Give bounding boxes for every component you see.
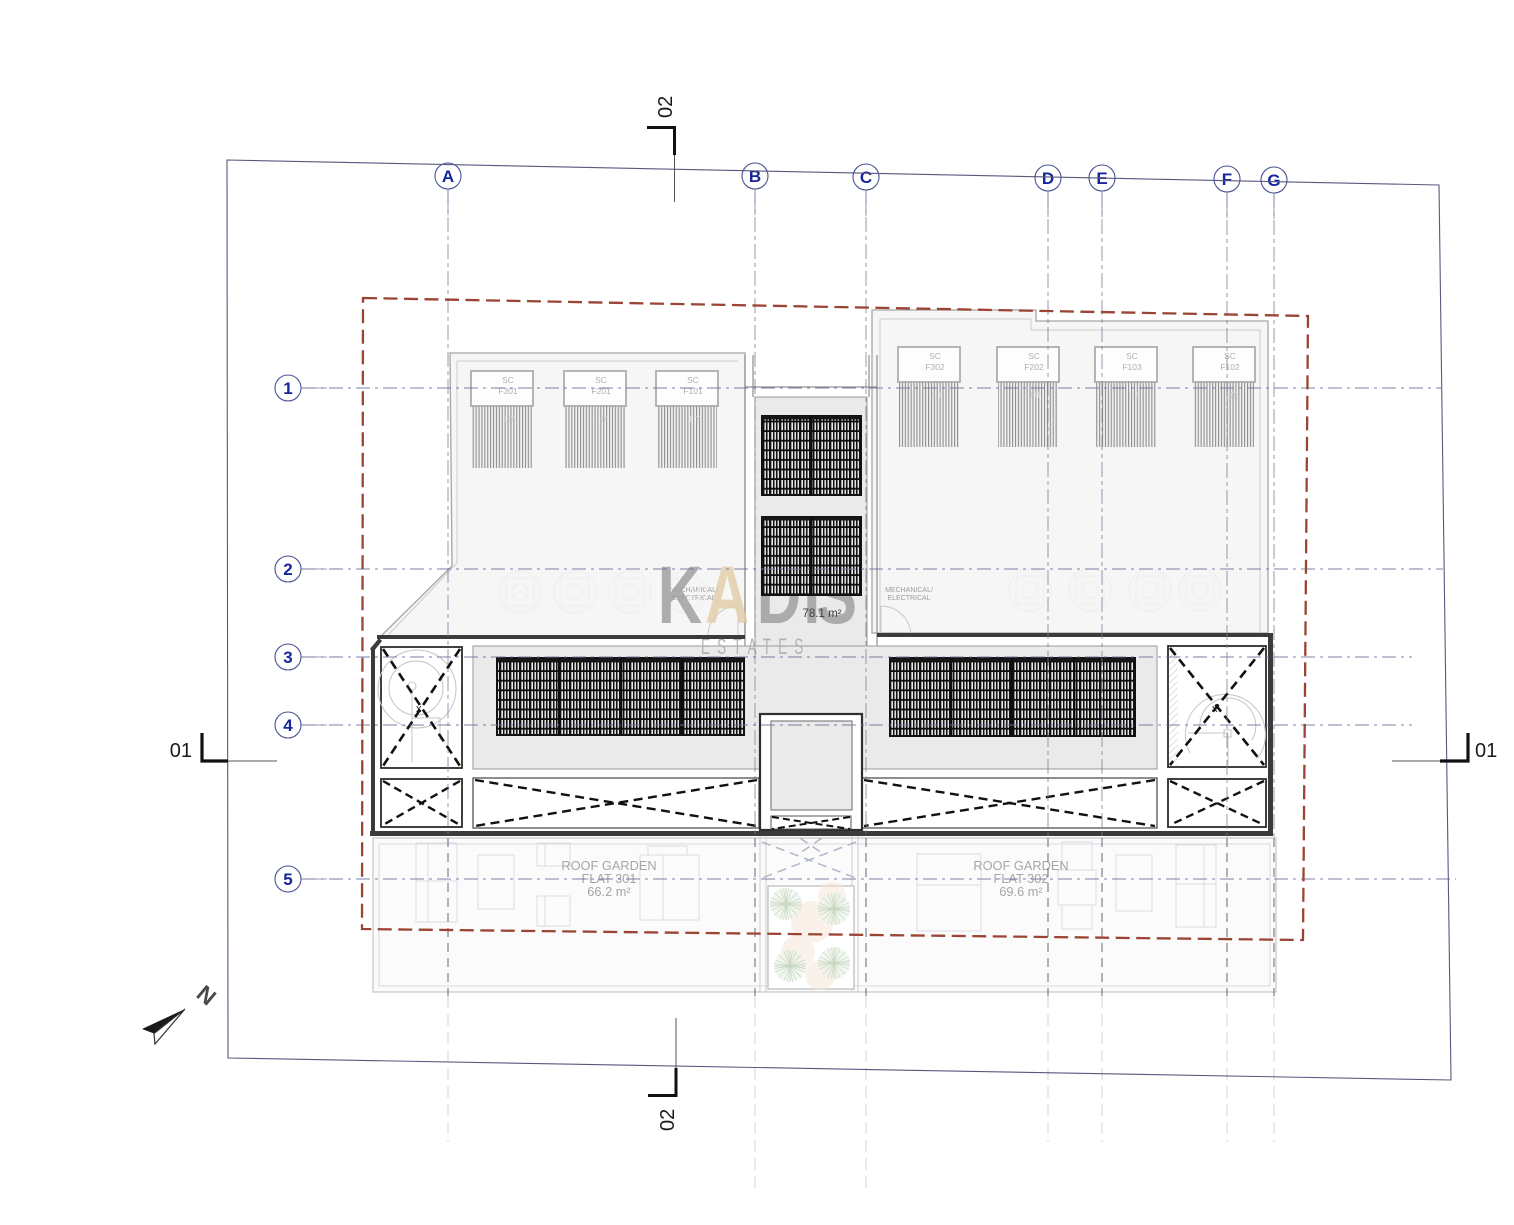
svg-text:ELECTRICAL: ELECTRICAL [887,595,930,602]
svg-text:HT: HT [1129,391,1140,400]
svg-text:HT: HT [690,415,701,424]
svg-text:K: K [658,549,702,641]
svg-text:02: 02 [655,96,677,118]
svg-text:F101: F101 [683,386,703,396]
svg-text:66.2 m²: 66.2 m² [587,884,631,899]
svg-text:F103: F103 [1122,362,1142,372]
svg-text:F102: F102 [1220,362,1240,372]
svg-text:MECHANICAL/: MECHANICAL/ [885,587,933,594]
svg-text:C: C [860,168,872,187]
svg-text:SC: SC [929,351,941,361]
svg-text:2: 2 [283,560,292,579]
svg-text:F301: F301 [498,386,518,396]
svg-text:5: 5 [283,870,292,889]
svg-text:HT: HT [505,415,516,424]
svg-text:01: 01 [170,740,192,762]
svg-text:HT: HT [932,391,943,400]
svg-text:01: 01 [1475,740,1497,762]
svg-text:B: B [749,167,761,186]
svg-text:F: F [1222,170,1232,189]
svg-text:3: 3 [283,648,292,667]
svg-text:SC: SC [687,375,699,385]
svg-text:HT: HT [598,415,609,424]
svg-text:x: x [1212,703,1218,715]
svg-text:HT: HT [1227,391,1238,400]
svg-text:SC: SC [1126,351,1138,361]
svg-text:G: G [1267,171,1280,190]
svg-text:D: D [1042,169,1054,188]
svg-text:x: x [416,703,422,715]
svg-text:A: A [705,549,749,641]
svg-text:F201: F201 [591,386,611,396]
svg-text:78.1 m²: 78.1 m² [803,608,842,620]
svg-text:02: 02 [657,1109,679,1131]
svg-text:A: A [442,167,454,186]
svg-text:HT: HT [1031,391,1042,400]
svg-text:SC: SC [595,375,607,385]
svg-text:4: 4 [283,716,293,735]
svg-text:1: 1 [283,379,292,398]
svg-text:SC: SC [1224,351,1236,361]
svg-text:SC: SC [502,375,514,385]
svg-text:69.6 m²: 69.6 m² [999,884,1043,899]
svg-text:SC: SC [1028,351,1040,361]
svg-text:F302: F302 [925,362,945,372]
svg-text:F202: F202 [1024,362,1044,372]
